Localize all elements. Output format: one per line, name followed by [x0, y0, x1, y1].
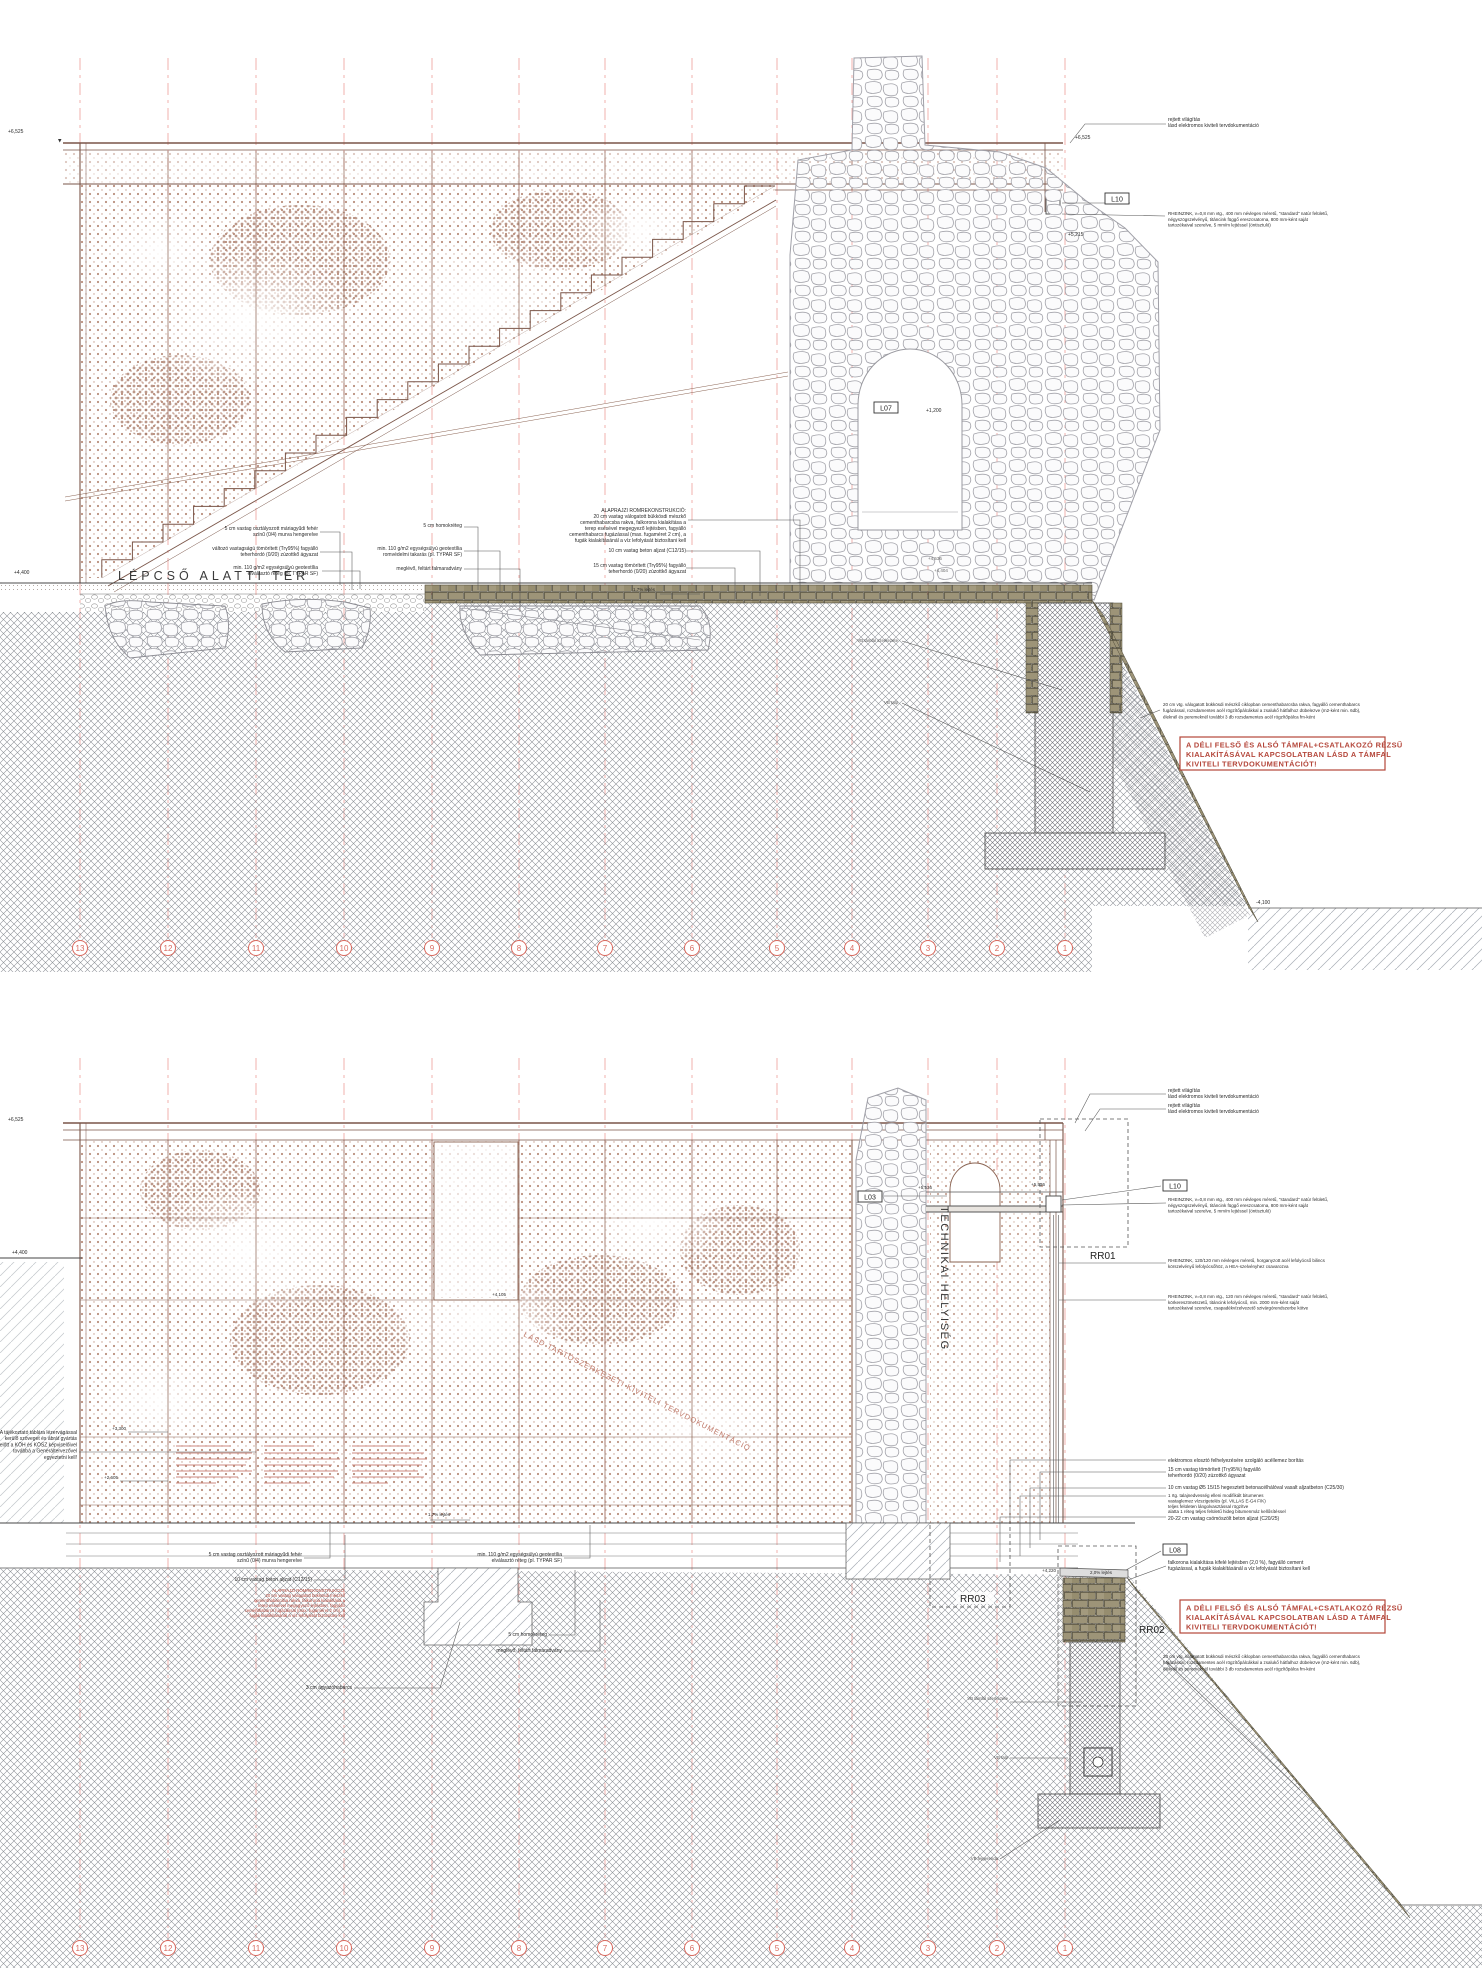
- rammed-concrete-note: 20-22 cm vastag csömöszölt beton aljzat …: [1168, 1516, 1279, 1522]
- geotextile-ruin-note: min. 110 g/m2 egységsúlyú geotextíliarom…: [377, 546, 462, 558]
- downpipe-clamp-note: RHEINZINK, 120/120 mm névleges méretű, h…: [1168, 1258, 1326, 1269]
- gutter-detail-b: [1046, 1196, 1061, 1212]
- toe-strata: [1248, 908, 1482, 970]
- drawing-bottom-section: +4,105 LÁSD TARTÓSZERKEZETI KIVITELI TER…: [0, 1088, 1482, 1968]
- elevation-2605: +2,605: [104, 1475, 118, 1480]
- vb-wall-label: VB támfal szerkezete: [857, 638, 898, 643]
- grid-4-b: 4: [850, 1944, 855, 1953]
- grid-2-b: 2: [995, 1944, 1000, 1953]
- grid-7-b: 7: [603, 1944, 608, 1953]
- label-rr03: RR03: [960, 1594, 986, 1605]
- grid-6-b: 6: [690, 1944, 695, 1953]
- grid-5-b: 5: [775, 1944, 780, 1953]
- grid-6: 6: [690, 944, 695, 953]
- electrical-plate-note: elektromos elosztó felhelyezésére szolgá…: [1168, 1458, 1304, 1464]
- reinforced-slab-note: 10 cm vastag Ø5 15/15 hegesztett betonac…: [1168, 1485, 1344, 1491]
- elevation-5536: +5,536: [918, 1185, 932, 1190]
- wall-crown-note: falkorona kialakítása kifelé lejtésben (…: [1168, 1560, 1310, 1572]
- grid-11-b: 11: [252, 1944, 261, 1953]
- elevation-4536: +4,536: [928, 556, 942, 561]
- grid-1: 1: [1063, 944, 1068, 953]
- grid-4: 4: [850, 944, 855, 953]
- elevation-6525-bl: +6,525: [8, 1117, 24, 1123]
- grid-3-b: 3: [926, 1944, 931, 1953]
- grid-10-b: 10: [340, 1944, 349, 1953]
- grid-9: 9: [430, 944, 435, 953]
- existing-wall-note-b: meglévő, feltárt falmaradvány: [496, 1648, 562, 1654]
- murva-note-b: 5 cm vastag osztályozott máriagyűdi fehé…: [209, 1552, 303, 1564]
- elevation-1200: +1,200: [926, 408, 942, 414]
- concrete-subbase-note-b: 10 cm vastag beton aljzat (C12/15): [234, 1577, 312, 1583]
- slope-20-label: 2,0% lejtés: [1090, 1570, 1113, 1575]
- elevation-5536-b: +5,536: [1031, 1182, 1045, 1187]
- bedding-mortar-note: 3 cm ágyazóhabarcs: [306, 1685, 353, 1691]
- technical-room-title: TECHNIKAI HELYISÉG: [938, 1206, 951, 1351]
- grid-8-b: 8: [517, 1944, 522, 1953]
- left-terrain-sliver: [0, 1262, 64, 1523]
- label-l07: L07: [880, 406, 892, 413]
- rheinzink-gutter-note-b: RHEINZINK, v=0,8 mm vtg., 400 mm névlege…: [1168, 1197, 1328, 1214]
- elevation-4400: +4,400: [14, 570, 30, 576]
- vb-footing-label: VB talp: [884, 700, 898, 705]
- hidden-lighting-note-b2: rejtett világításlásd elektromos kivitel…: [1168, 1103, 1259, 1115]
- existing-wall-note: meglévő, feltárt falmaradvány: [396, 566, 462, 572]
- waterproofing-note: 1 rtg. talajnedvesség elleni modifikált …: [1168, 1493, 1286, 1514]
- earth-fill-hatch: [0, 603, 1092, 972]
- grid-10: 10: [340, 944, 349, 953]
- room-right-wall: [1050, 1123, 1063, 1523]
- sand-layer-note-b: 5 cm homokréteg: [508, 1632, 547, 1638]
- drawing-top-section: +6,525 +6,525 rejtett világításlásd elek…: [0, 56, 1482, 972]
- elevation-5215: +5,215: [1068, 232, 1084, 238]
- label-l10-b: L10: [1169, 1184, 1181, 1191]
- grid-12-b: 12: [164, 1944, 173, 1953]
- slope-17-label: 1,7% lejtés: [633, 587, 656, 592]
- grid-13-b: 13: [76, 1944, 85, 1953]
- grid-11: 11: [252, 944, 261, 953]
- vb-beam-label-b: VB fejgerenda: [971, 1856, 999, 1861]
- concrete-subbase-note: 10 cm vastag beton aljzat (C12/15): [608, 548, 686, 554]
- rheinzink-gutter-note: RHEINZINK, v=0,8 mm vtg., 400 mm névlege…: [1168, 211, 1328, 228]
- sand-layer-note: 5 cm homokréteg: [423, 523, 462, 529]
- murva-note: 5 cm vastag osztályozott máriagyűdi fehé…: [225, 526, 319, 538]
- label-rr02: RR02: [1139, 1625, 1165, 1636]
- elevation-3300: +3,300: [112, 1426, 126, 1431]
- hidden-lighting-note: rejtett világításlásd elektromos kivitel…: [1168, 117, 1259, 129]
- vb-wall-label-b: VB támfal szerkezete: [967, 1696, 1008, 1701]
- label-l10: L10: [1111, 197, 1123, 204]
- crushed-stone-note: 15 cm vastag tömörített (Trγ95%) fagyáll…: [593, 563, 686, 575]
- cyclopean-stone-note-b: 20 cm vtg. válogatott bükkösdi mészkő ci…: [1163, 1654, 1361, 1671]
- grid-12: 12: [164, 944, 173, 953]
- vb-footing-label-b: VB talp: [994, 1755, 1008, 1760]
- geotextile-note-b: min. 110 g/m2 egységsúlyú geotextíliaelv…: [477, 1552, 562, 1564]
- elevation-6525-right: +6,525: [1075, 135, 1091, 141]
- label-l03: L03: [864, 1195, 876, 1202]
- grid-13: 13: [76, 944, 85, 953]
- grid-8: 8: [517, 944, 522, 953]
- elevation-4404: +4,404: [934, 568, 948, 573]
- elevation-4105: +4,105: [492, 1292, 506, 1297]
- grid-1-b: 1: [1063, 1944, 1068, 1953]
- murva-band: [0, 585, 425, 593]
- cyclopean-stone-note: 20 cm vtg. válogatott bükkösdi mészkő ci…: [1163, 702, 1361, 719]
- elevation-6525-left: +6,525: [8, 129, 24, 135]
- elevation-4400-b: +4,400: [12, 1250, 28, 1256]
- grid-2: 2: [995, 944, 1000, 953]
- grid-9-b: 9: [430, 1944, 435, 1953]
- grid-5: 5: [775, 944, 780, 953]
- rom-reconstruction-note: ALAPRAJZI ROMREKONSTRUKCIÓ:20 cm vastag …: [569, 507, 686, 544]
- hidden-lighting-note-b1: rejtett világításlásd elektromos kivitel…: [1168, 1088, 1259, 1100]
- downpipe-note: RHEINZINK, v=0,8 mm vtg., 120 mm névlege…: [1168, 1294, 1328, 1311]
- pillar-foundation: [846, 1523, 950, 1579]
- label-l08: L08: [1169, 1548, 1181, 1555]
- elevation-4220: +4,220: [1042, 1568, 1056, 1573]
- crushed-stone-note-b: 15 cm vastag tömörített (Trγ95%) fagyáll…: [1168, 1467, 1261, 1479]
- slope-17-label-b: 1,7% lejtés: [428, 1512, 451, 1517]
- stone-cap-band: [425, 585, 1092, 603]
- variable-fill-note: változó vastagságú tömörített (Trγ95%) f…: [212, 546, 318, 558]
- sections-svg: +6,525 +6,525 rejtett világításlásd elek…: [0, 0, 1482, 1968]
- label-rr01: RR01: [1090, 1251, 1116, 1262]
- stone-pillar: [856, 1088, 926, 1523]
- architectural-sections-sheet: +6,525 +6,525 rejtett világításlásd elek…: [0, 0, 1482, 1968]
- gate-arch: [858, 349, 962, 530]
- grid-7: 7: [603, 944, 608, 953]
- stone-gate-bastion: [790, 56, 1160, 600]
- elevation-minus-4100: -4,100: [1256, 900, 1270, 906]
- grid-3: 3: [926, 944, 931, 953]
